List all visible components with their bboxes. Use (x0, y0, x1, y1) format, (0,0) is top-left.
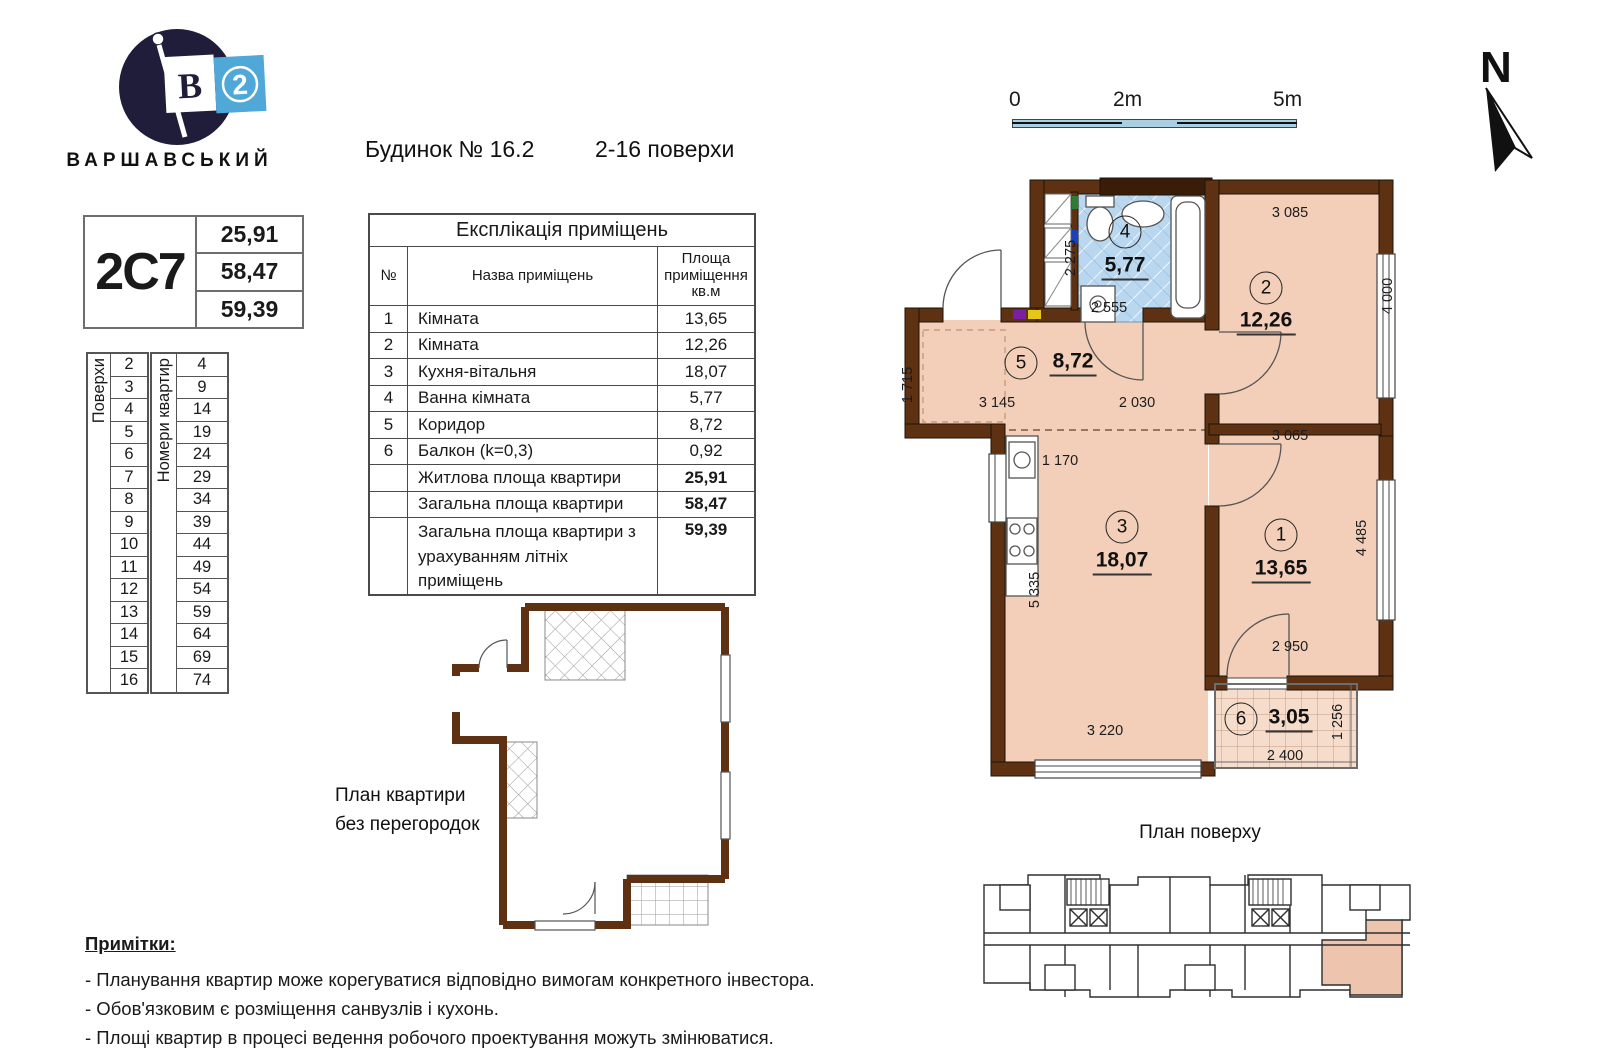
room-area-label: 18,07 (1093, 549, 1152, 576)
apartment-numbers-label: Номери квартир (152, 354, 177, 692)
dimension-label: 2 555 (1091, 300, 1127, 316)
scale-0: 0 (1009, 88, 1021, 112)
room-number-circle: 6 (1225, 703, 1258, 736)
notes-list: - Планування квартир може корегуватися в… (85, 969, 815, 1049)
note-line: - Планування квартир може корегуватися в… (85, 969, 815, 991)
total-value: 59,39 (658, 518, 754, 594)
apartment-card: 2С7 25,91 58,47 59,39 (83, 215, 304, 329)
apartment-number: 59 (177, 602, 227, 625)
scale-bar: 0 2m 5m (1005, 88, 1305, 136)
room-name: Кімната (408, 306, 658, 332)
floor-number: 13 (111, 602, 147, 625)
total-area-value: 58,47 (197, 254, 302, 291)
room-name: Кухня-вітальня (408, 359, 658, 385)
apartment-number: 19 (177, 422, 227, 445)
dimension-label: 1 170 (1042, 453, 1078, 469)
explication-row: 1Кімната13,65 (370, 306, 754, 333)
small-plan-bath-hatch (545, 610, 625, 680)
apartment-number: 4 (177, 354, 227, 377)
room-area-label: 3,05 (1266, 706, 1313, 733)
total-with-summer-value: 59,39 (197, 292, 302, 327)
room-area-label: 13,65 (1252, 557, 1311, 584)
apartment-number: 39 (177, 512, 227, 535)
floor-number: 11 (111, 557, 147, 580)
row-number-empty (370, 465, 408, 491)
floor-number: 14 (111, 624, 147, 647)
north-label: N (1480, 43, 1512, 92)
floors-table-values: 2345678910111213141516 (111, 354, 147, 692)
scale-5m: 5m (1273, 88, 1302, 112)
toilet-tank (1086, 196, 1114, 207)
floors-table-label: Поверхи (88, 354, 111, 692)
apartment-number: 44 (177, 534, 227, 557)
note-line: - Площі квартир в процесі ведення робочо… (85, 1027, 815, 1049)
brand-logo: В 2 (95, 25, 315, 150)
explication-row: 4Ванна кімната5,77 (370, 386, 754, 413)
room-area-value: 8,72 (658, 412, 754, 438)
north-arrow: N (1438, 40, 1548, 185)
dimension-label: 2 030 (1119, 395, 1155, 411)
floor-number: 16 (111, 669, 147, 692)
brand-name: ВАРШАВСЬКИЙ (62, 150, 277, 172)
floor-number: 12 (111, 579, 147, 602)
building-title: Будинок № 16.2 (365, 136, 534, 163)
row-number: 6 (370, 439, 408, 465)
room-area-value: 5,77 (658, 386, 754, 412)
total-name: Загальна площа квартири (408, 492, 658, 518)
floor-number: 9 (111, 512, 147, 535)
apartment-number: 49 (177, 557, 227, 580)
explication-row: 3Кухня-вітальня18,07 (370, 359, 754, 386)
logo-flag-number: 2 (231, 69, 248, 101)
floors-range-title: 2-16 поверхи (595, 136, 734, 163)
room-area-value: 0,92 (658, 439, 754, 465)
room-number-circle: 2 (1250, 272, 1283, 305)
col-no: № (370, 247, 408, 305)
room-area-label: 8,72 (1050, 350, 1097, 377)
bathtub-inner (1176, 202, 1200, 308)
stair-core (1249, 879, 1291, 905)
dimension-label: 2 400 (1267, 748, 1303, 764)
floor-number: 3 (111, 377, 147, 400)
floor-plan-caption: План поверху (1080, 822, 1320, 844)
total-name: Житлова площа квартири (408, 465, 658, 491)
room-name: Балкон (k=0,3) (408, 439, 658, 465)
room-area-label: 12,26 (1237, 309, 1296, 336)
explication-total-row: Загальна площа квартири58,47 (370, 492, 754, 519)
floors-table: Поверхи 2345678910111213141516 (86, 352, 149, 694)
room-area-value: 18,07 (658, 359, 754, 385)
apartment-code: 2С7 (85, 217, 197, 327)
row-number: 4 (370, 386, 408, 412)
explication-table: Експлікація приміщень № Назва приміщень … (368, 213, 756, 596)
scale-2m: 2m (1113, 88, 1142, 112)
apartment-number: 69 (177, 647, 227, 670)
total-name: Загальна площа квартири з урахуванням лі… (408, 518, 658, 594)
room-area-label: 5,77 (1102, 254, 1149, 281)
dimension-label: 3 065 (1272, 428, 1308, 444)
dimension-label: 1 256 (1330, 704, 1346, 740)
floor-number: 15 (111, 647, 147, 670)
col-name: Назва приміщень (408, 247, 658, 305)
floor-number: 8 (111, 489, 147, 512)
no-partitions-line2: без перегородок (335, 811, 480, 840)
explication-row: 6Балкон (k=0,3)0,92 (370, 439, 754, 466)
floor-number: 6 (111, 444, 147, 467)
floor-number: 2 (111, 354, 147, 377)
room-number-circle: 3 (1106, 511, 1139, 544)
col-area: Площа приміщення кв.м (658, 247, 754, 305)
note-line: - Обов'язковим є розміщення санвузлів і … (85, 998, 815, 1020)
row-number-empty (370, 518, 408, 594)
row-number: 2 (370, 333, 408, 359)
apartment-number: 34 (177, 489, 227, 512)
sheet: В 2 ВАРШАВСЬКИЙ Будинок № 16.2 2-16 пове… (0, 0, 1600, 1055)
no-partitions-caption: План квартири без перегородок (335, 782, 480, 839)
room-number-circle: 1 (1265, 519, 1298, 552)
row-number: 3 (370, 359, 408, 385)
dimension-label: 4 000 (1380, 278, 1396, 314)
scale-bar-segment (1177, 122, 1297, 124)
explication-header: № Назва приміщень Площа приміщення кв.м (370, 247, 754, 306)
dimension-label: 2 275 (1063, 240, 1079, 276)
room-name: Кімната (408, 333, 658, 359)
dimension-label: 3 085 (1272, 205, 1308, 221)
total-value: 58,47 (658, 492, 754, 518)
notes: Примітки: - Планування квартир може коре… (85, 933, 815, 1055)
building-floor-plan (970, 845, 1430, 1045)
logo-flag-letter: В (177, 65, 203, 106)
explication-title: Експлікація приміщень (370, 215, 754, 247)
room-name: Ванна кімната (408, 386, 658, 412)
apartment-numbers-table: Номери квартир 4914192429343944495459646… (150, 352, 229, 694)
room-number-circle: 4 (1109, 216, 1142, 249)
dimension-label: 4 485 (1354, 520, 1370, 556)
no-partitions-line1: План квартири (335, 782, 480, 811)
floor-number: 4 (111, 399, 147, 422)
logo-flagpole-top (152, 33, 164, 45)
room-name: Коридор (408, 412, 658, 438)
floor-number: 10 (111, 534, 147, 557)
row-number: 1 (370, 306, 408, 332)
apartment-plan-drawing (885, 170, 1415, 785)
explication-row: 5Коридор8,72 (370, 412, 754, 439)
dimension-label: 2 950 (1272, 639, 1308, 655)
apartment-number: 54 (177, 579, 227, 602)
explication-total-row: Житлова площа квартири25,91 (370, 465, 754, 492)
apartment-number: 64 (177, 624, 227, 647)
floor-number: 5 (111, 422, 147, 445)
living-area-value: 25,91 (197, 217, 302, 254)
scale-bar-segment (1012, 122, 1122, 124)
apartment-number: 9 (177, 377, 227, 400)
explication-total-row: Загальна площа квартири з урахуванням лі… (370, 518, 754, 594)
dimension-label: 3 145 (979, 395, 1015, 411)
total-value: 25,91 (658, 465, 754, 491)
apartment-numbers-values: 4914192429343944495459646974 (177, 354, 227, 692)
room-number-circle: 5 (1005, 347, 1038, 380)
row-number-empty (370, 492, 408, 518)
apartment-number: 14 (177, 399, 227, 422)
stair-core (1067, 879, 1109, 905)
room-area-value: 13,65 (658, 306, 754, 332)
apartment-plan: 45,77212,2658,72318,07113,6563,05 3 0854… (885, 170, 1415, 785)
small-plan-vent-hatch (505, 742, 537, 818)
row-number: 5 (370, 412, 408, 438)
explication-row: 2Кімната12,26 (370, 333, 754, 360)
dimension-label: 5 335 (1027, 572, 1043, 608)
dimension-label: 3 220 (1087, 723, 1123, 739)
no-partitions-plan (445, 592, 745, 947)
apartment-number: 74 (177, 669, 227, 692)
dimension-label: 1 715 (900, 367, 916, 403)
notes-title: Примітки: (85, 933, 815, 955)
room-area-value: 12,26 (658, 333, 754, 359)
apartment-number: 24 (177, 444, 227, 467)
floor-number: 7 (111, 467, 147, 490)
apartment-number: 29 (177, 467, 227, 490)
explication-rows: 1Кімната13,652Кімната12,263Кухня-вітальн… (370, 306, 754, 594)
